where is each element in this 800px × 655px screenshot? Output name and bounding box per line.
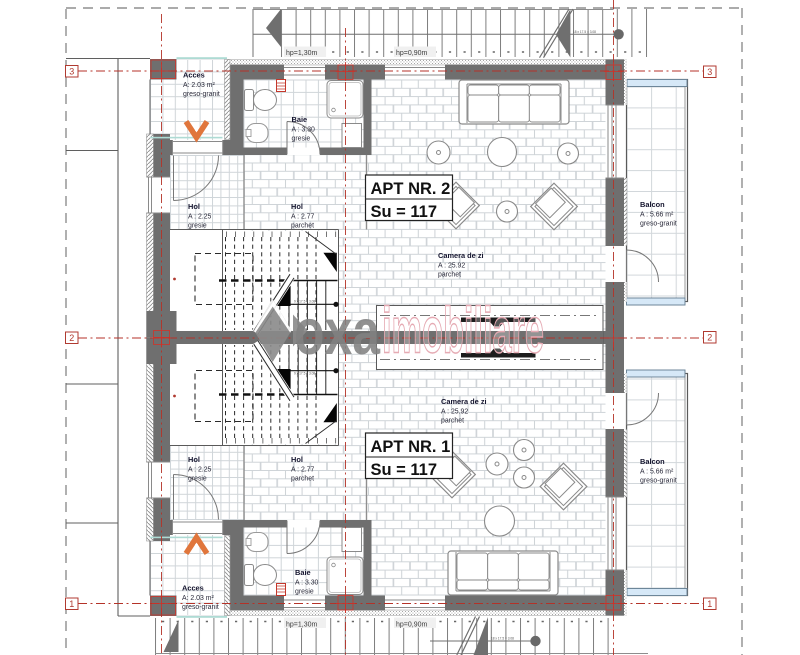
svg-text:hp=0,90m: hp=0,90m [396, 50, 427, 57]
svg-text:greso-granit: greso-granit [183, 91, 220, 98]
svg-text:Acces: Acces [182, 584, 204, 593]
svg-text:imobiliare: imobiliare [382, 294, 544, 367]
svg-text:oxa: oxa [294, 295, 381, 368]
svg-text:A : 5.66 m²: A : 5.66 m² [640, 468, 674, 475]
svg-text:Camera de zi: Camera de zi [441, 397, 487, 406]
svg-text:2: 2 [69, 333, 74, 343]
svg-text:18 x 17.5 = 3.08: 18 x 17.5 = 3.08 [491, 637, 514, 641]
svg-text:greso-granit: greso-granit [640, 221, 677, 228]
svg-text:greso-granit: greso-granit [640, 478, 677, 485]
svg-text:Balcon: Balcon [640, 200, 665, 209]
svg-text:Baie: Baie [292, 115, 308, 124]
svg-text:18 x 17.5 = 3.08: 18 x 17.5 = 3.08 [573, 30, 596, 34]
svg-text:A : 2.77: A : 2.77 [291, 213, 315, 220]
svg-text:gresie: gresie [188, 223, 207, 230]
svg-text:gresie: gresie [295, 589, 314, 596]
svg-text:A: 2.03 m²: A: 2.03 m² [182, 595, 214, 602]
svg-text:Balcon: Balcon [640, 457, 665, 466]
svg-text:1: 1 [707, 599, 712, 609]
svg-text:gresie: gresie [292, 136, 311, 143]
svg-text:Su = 117: Su = 117 [371, 203, 438, 221]
svg-text:greso-granit: greso-granit [182, 604, 219, 611]
svg-text:Hol: Hol [188, 455, 200, 464]
svg-text:A : 25.92: A : 25.92 [441, 408, 468, 415]
svg-text:9 x 17.5 = 3.08: 9 x 17.5 = 3.08 [294, 372, 315, 376]
svg-text:A : 5.66 m²: A : 5.66 m² [640, 211, 674, 218]
svg-text:Hol: Hol [291, 455, 303, 464]
svg-text:Hol: Hol [188, 202, 200, 211]
svg-text:gresie: gresie [188, 476, 207, 483]
svg-text:Baie: Baie [295, 568, 311, 577]
svg-text:hp=1,30m: hp=1,30m [286, 622, 317, 629]
svg-text:Hol: Hol [291, 202, 303, 211]
svg-text:parchet: parchet [441, 418, 464, 425]
svg-text:A : 2.77: A : 2.77 [291, 466, 315, 473]
svg-text:hp=0,90m: hp=0,90m [396, 622, 427, 629]
svg-text:3: 3 [707, 67, 712, 77]
svg-text:APT NR. 2: APT NR. 2 [371, 180, 451, 198]
svg-text:A : 3.30: A : 3.30 [292, 126, 316, 133]
svg-text:2: 2 [707, 333, 712, 343]
svg-text:A : 25.92: A : 25.92 [438, 262, 465, 269]
svg-text:3: 3 [69, 67, 74, 77]
svg-text:Acces: Acces [183, 71, 205, 80]
svg-text:1: 1 [69, 599, 74, 609]
svg-text:APT NR. 1: APT NR. 1 [371, 438, 451, 456]
svg-text:A: 2.03 m²: A: 2.03 m² [183, 82, 215, 89]
svg-text:parchet: parchet [291, 223, 314, 230]
svg-text:Su = 117: Su = 117 [371, 461, 438, 479]
svg-text:A : 3.30: A : 3.30 [295, 579, 319, 586]
svg-text:parchet: parchet [438, 272, 461, 279]
svg-text:parchet: parchet [291, 476, 314, 483]
svg-text:Camera de zi: Camera de zi [438, 251, 484, 260]
svg-text:A : 2.25: A : 2.25 [188, 213, 212, 220]
svg-text:A : 2.25: A : 2.25 [188, 466, 212, 473]
svg-text:hp=1,30m: hp=1,30m [286, 50, 317, 57]
